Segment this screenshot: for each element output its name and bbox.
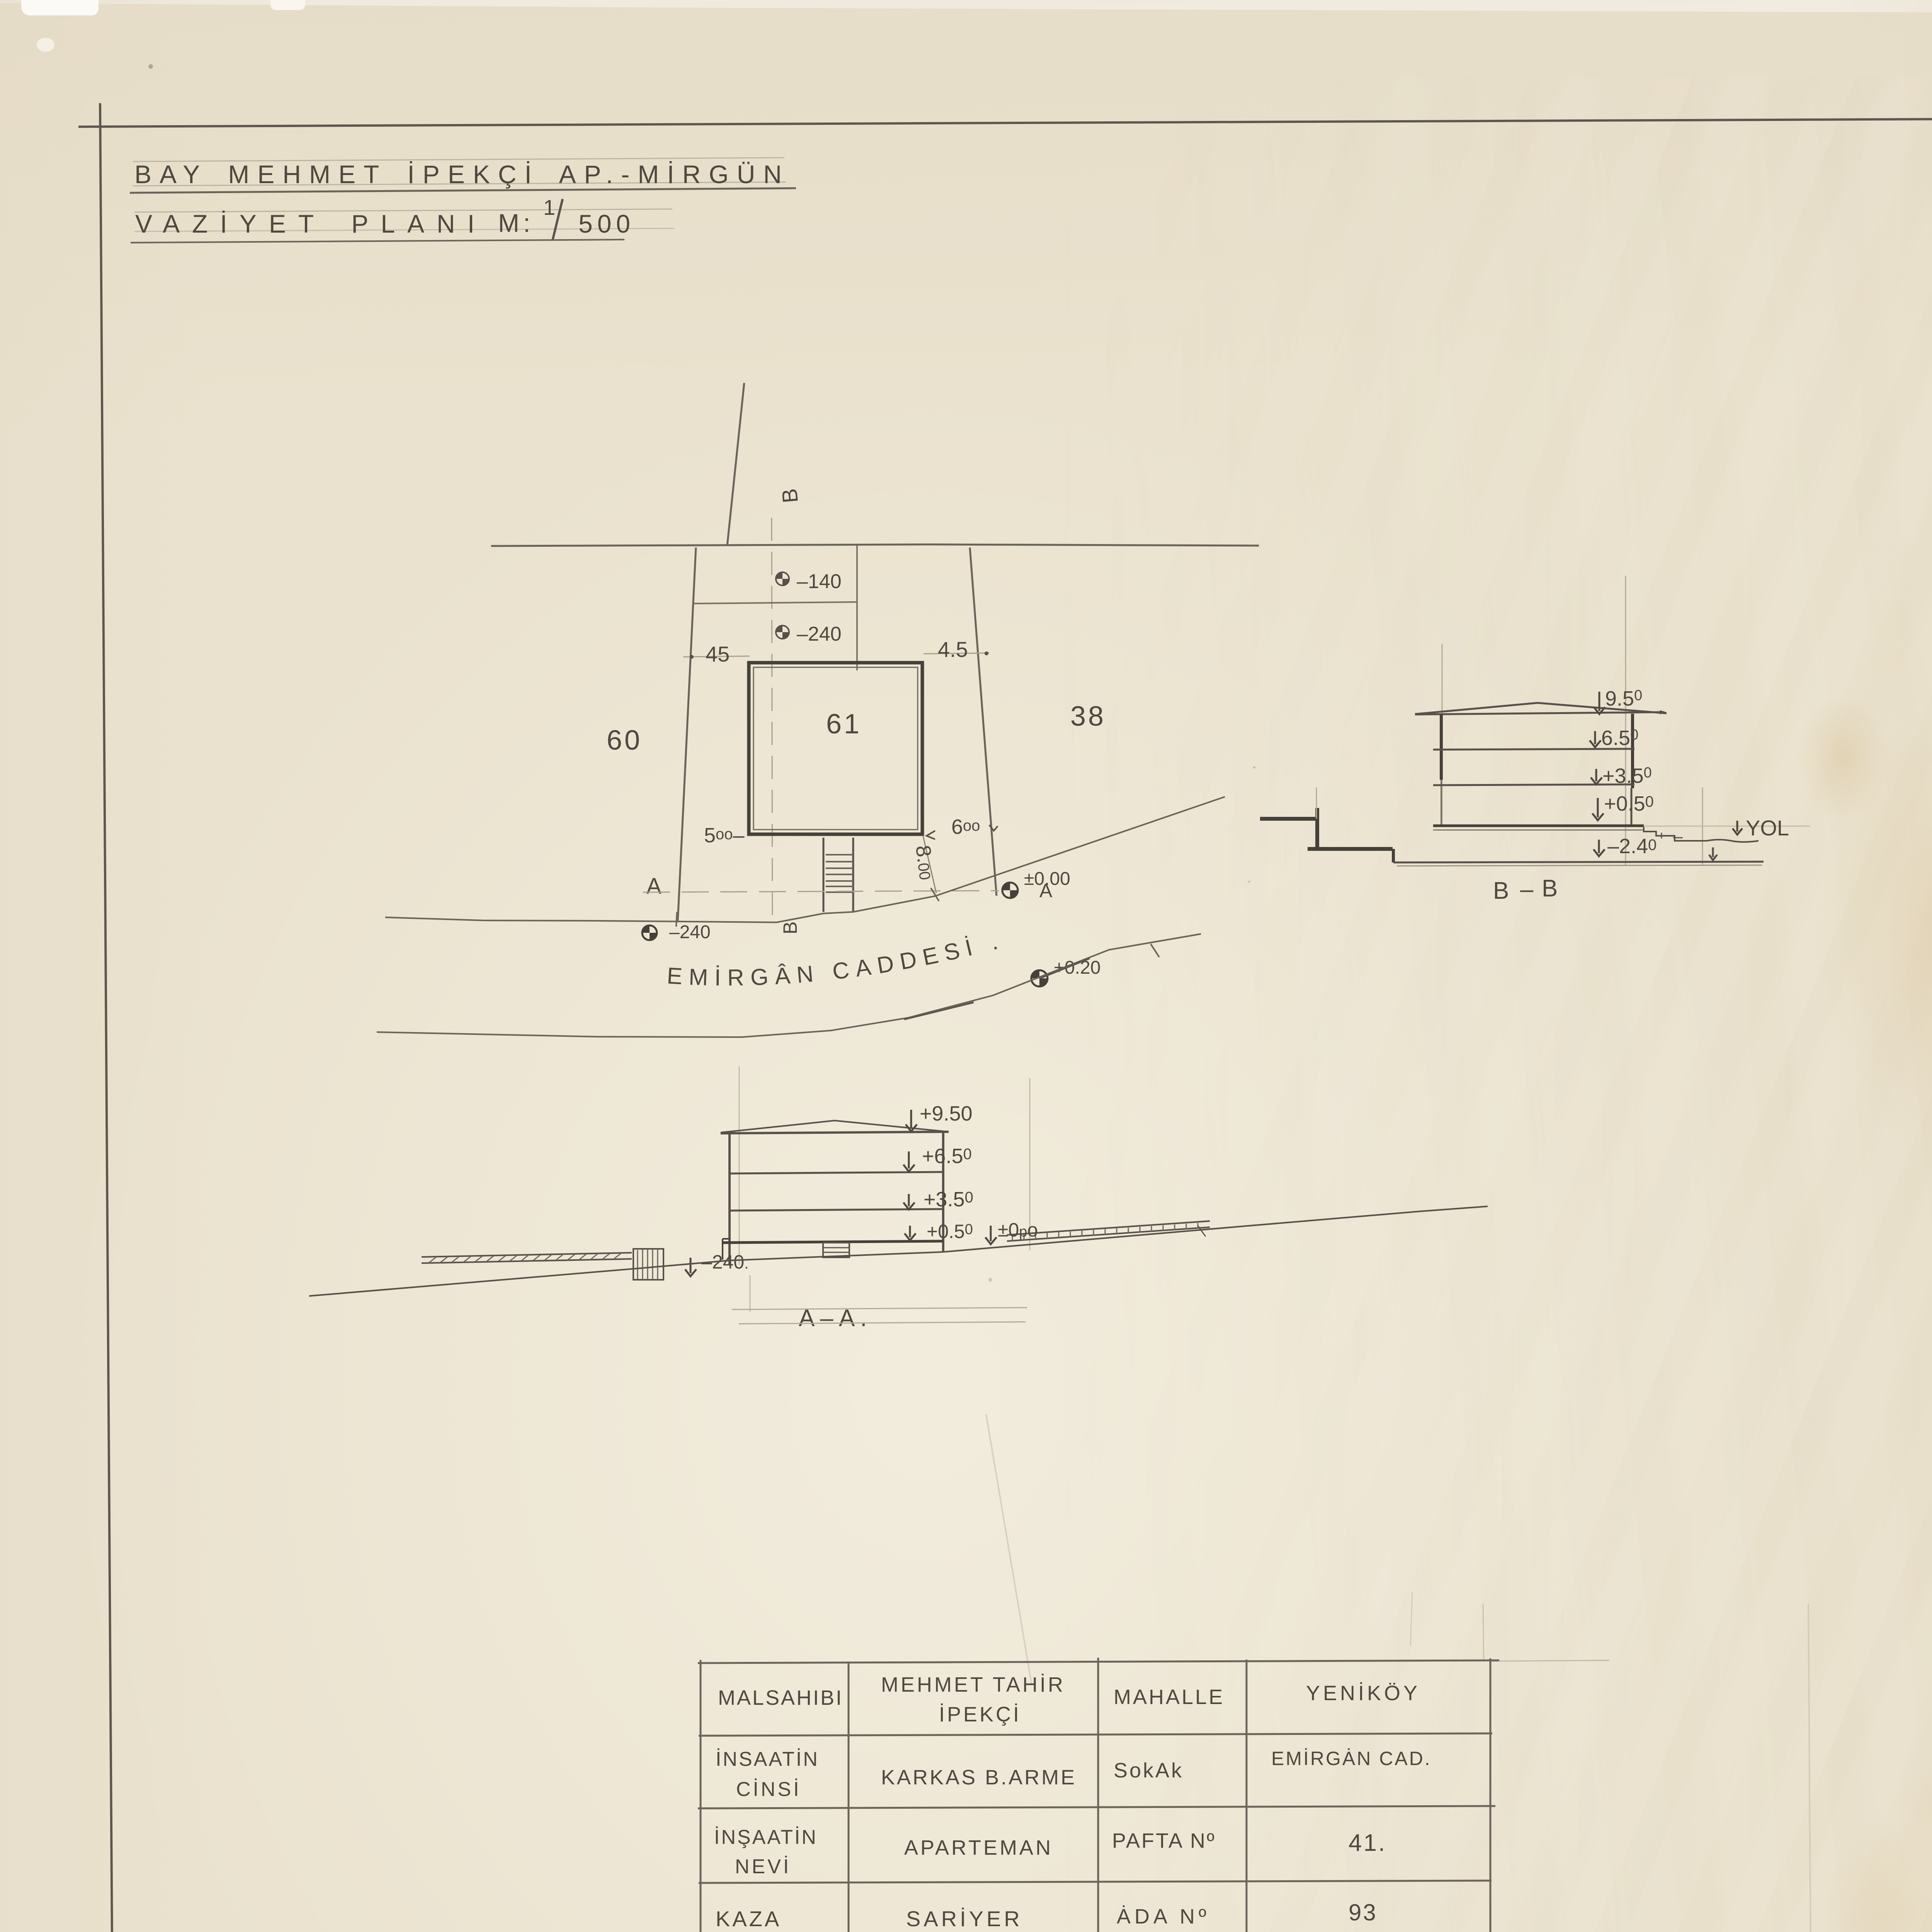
svg-text:CİNSİ: CİNSİ	[736, 1778, 801, 1801]
svg-text:B: B	[779, 922, 801, 934]
svg-text:–2.40: –2.40	[1607, 835, 1656, 858]
svg-text:SARİYER: SARİYER	[906, 1906, 1023, 1931]
svg-text:8.00: 8.00	[911, 844, 938, 881]
svg-text:6oo: 6oo	[951, 815, 980, 838]
svg-text:A: A	[646, 874, 662, 899]
svg-text:+9.50: +9.50	[920, 1102, 973, 1125]
svg-text:93: 93	[1349, 1900, 1378, 1925]
svg-text:MEHMET TAHİR: MEHMET TAHİR	[881, 1673, 1065, 1696]
svg-text:+3.50: +3.50	[923, 1188, 973, 1211]
svg-text:MAHALLE: MAHALLE	[1114, 1685, 1225, 1709]
svg-text:45: 45	[706, 642, 730, 666]
svg-text:B: B	[1542, 875, 1558, 902]
svg-text:B: B	[777, 488, 803, 504]
svg-text:+0.50: +0.50	[927, 1221, 973, 1242]
svg-text:SokAk: SokAk	[1114, 1759, 1184, 1782]
svg-text:EMİRGÂN CADDESİ .: EMİRGÂN CADDESİ .	[666, 927, 1007, 991]
svg-text:VAZİYET PLANI: VAZİYET PLANI	[135, 209, 487, 238]
svg-text:YOL: YOL	[1746, 816, 1789, 840]
svg-text:61: 61	[826, 709, 862, 740]
svg-text:İPEKÇİ: İPEKÇİ	[939, 1703, 1021, 1726]
svg-text:A–A.: A–A.	[799, 1305, 872, 1332]
svg-text:İNŞAATİN: İNŞAATİN	[714, 1826, 818, 1849]
svg-text:1: 1	[543, 195, 555, 219]
svg-text:İNSAATİN: İNSAATİN	[716, 1748, 819, 1770]
svg-text:–140: –140	[797, 570, 842, 593]
svg-text:EMİRGȦN CAD.: EMİRGȦN CAD.	[1271, 1748, 1432, 1769]
svg-text:41.: 41.	[1349, 1830, 1386, 1856]
svg-text:9.50: 9.50	[1605, 687, 1642, 710]
svg-text:ȦDA Nº: ȦDA Nº	[1117, 1905, 1210, 1928]
svg-text:4.5: 4.5	[938, 637, 968, 662]
svg-text:+0.20: +0.20	[1054, 957, 1100, 978]
svg-text:BAY MEHMET İPEKÇİ AP.-MİRGÜN: BAY MEHMET İPEKÇİ AP.-MİRGÜN	[134, 160, 790, 189]
svg-text:60: 60	[607, 725, 642, 756]
svg-text:±0.00: ±0.00	[1024, 869, 1070, 889]
svg-text:+3.50: +3.50	[1602, 764, 1652, 787]
svg-text:PAFTA Nº: PAFTA Nº	[1112, 1829, 1216, 1852]
svg-text:B: B	[1493, 878, 1509, 904]
svg-text:±0po: ±0po	[998, 1219, 1038, 1241]
svg-text:–: –	[1520, 876, 1534, 903]
svg-text:KARKAS B.ARME: KARKAS B.ARME	[881, 1766, 1077, 1789]
svg-text:+0.50: +0.50	[1604, 792, 1654, 815]
svg-text:KAZA: KAZA	[716, 1906, 781, 1931]
svg-text:–240: –240	[669, 922, 711, 942]
svg-text:NEVİ: NEVİ	[735, 1855, 791, 1878]
svg-text:YENİKÖY: YENİKÖY	[1306, 1682, 1420, 1705]
svg-text:APARTEMAN: APARTEMAN	[904, 1836, 1053, 1859]
svg-text:+6.50: +6.50	[922, 1145, 972, 1168]
svg-text:5oo–: 5oo–	[704, 824, 745, 847]
svg-text:–240: –240	[797, 623, 842, 645]
svg-text:M:: M:	[498, 209, 534, 237]
svg-text:MALSAHIBI: MALSAHIBI	[718, 1686, 843, 1709]
svg-text:500: 500	[578, 209, 635, 238]
svg-text:38: 38	[1070, 701, 1106, 732]
